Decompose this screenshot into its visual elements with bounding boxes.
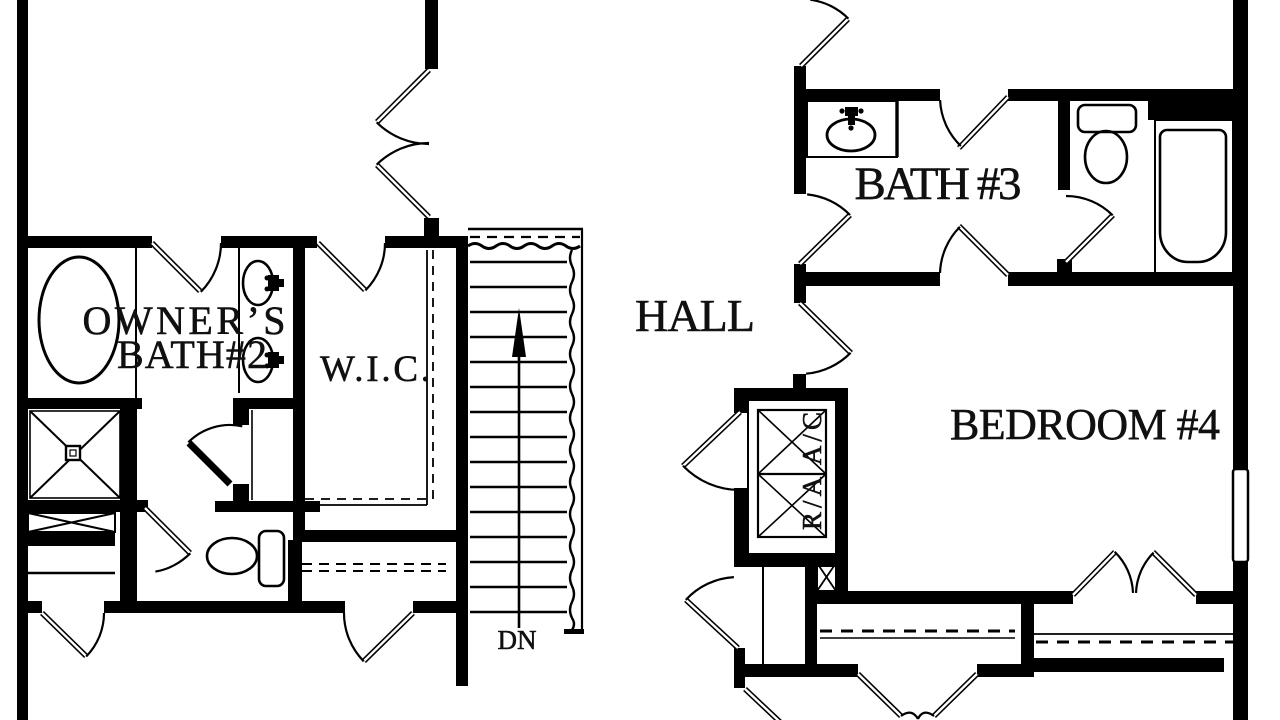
svg-text:BATH #3: BATH #3 [855,158,1022,210]
svg-text:DN: DN [498,625,537,655]
svg-text:BEDROOM #4: BEDROOM #4 [950,400,1220,449]
svg-text:HALL: HALL [635,290,755,341]
svg-text:BATH#2: BATH#2 [117,332,267,377]
svg-text:W.I.C.: W.I.C. [320,349,430,390]
svg-text:R/A A/C: R/A A/C [797,412,827,530]
